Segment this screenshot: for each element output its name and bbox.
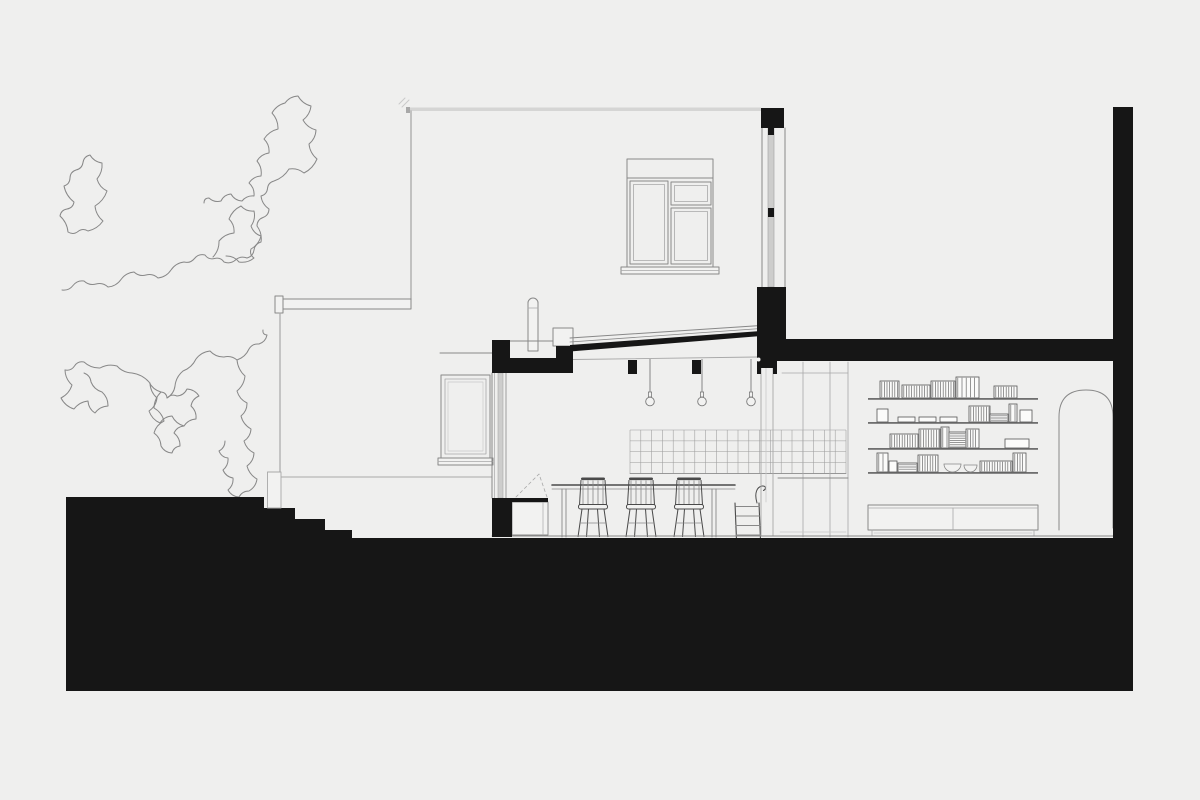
- bar-stools: [578, 478, 704, 538]
- bench-cabinet: [512, 474, 548, 535]
- boundary-wall: [1113, 107, 1133, 539]
- upper-window: [621, 159, 719, 274]
- rear-cabinetry: [778, 362, 848, 537]
- flue-pipe: [510, 298, 557, 351]
- extension-roof-slab: [757, 339, 1133, 361]
- drawing-canvas: [0, 0, 1200, 800]
- arched-opening: [1059, 390, 1113, 530]
- sideboard: [868, 505, 1038, 536]
- architectural-section-drawing: [0, 0, 1200, 800]
- kitchen-glass-door: [492, 373, 506, 498]
- rear-door-window: [438, 353, 494, 465]
- tile-splashback: [630, 430, 846, 474]
- outrigger-parapet: [268, 296, 492, 477]
- sash-window-section: [762, 128, 785, 287]
- book-shelves: [868, 377, 1038, 474]
